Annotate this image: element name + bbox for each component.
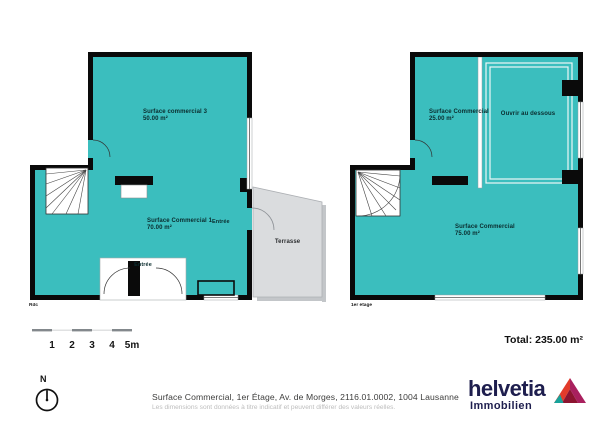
total-area: Total: 235.00 m² (504, 334, 583, 346)
void-label: Ouvrir au dessous (482, 111, 574, 118)
terrace-label: Terrasse (253, 239, 322, 246)
scale-tick: 2 (62, 340, 82, 351)
disclaimer-line: Les dimensions sont données à titre indi… (152, 404, 395, 411)
first-floor-plan (350, 52, 583, 300)
scale-tick: 4 (102, 340, 122, 351)
scale-tick: 3 (82, 340, 102, 351)
room-name: Surface commercial 3 (143, 109, 207, 116)
address-line: Surface Commercial, 1er Étage, Av. de Mo… (152, 392, 459, 402)
room-label-ground-top: Surface commercial 3 50.00 m² (143, 109, 207, 123)
closet-shape (121, 185, 147, 198)
scale-tick: 5m (122, 340, 142, 351)
north-label: N (40, 374, 47, 384)
stairs-first (356, 170, 400, 216)
helvetia-wordmark: helvetia (468, 376, 545, 402)
room-label-first-top: Surface Commercial 25.00 m² (429, 109, 489, 123)
stairs-ground (46, 168, 88, 214)
room-label-first-bottom: Surface Commercial 75.00 m² (455, 224, 515, 238)
room-name: Surface Commercial 1 (147, 218, 212, 225)
room-area: 50.00 m² (143, 116, 207, 123)
entrance-bottom-label: Entrée (100, 262, 186, 269)
room-area: 75.00 m² (455, 231, 515, 238)
room-name: Surface Commercial (429, 109, 489, 116)
helvetia-logo-icon (554, 378, 586, 403)
floorplan-page: Surface commercial 3 50.00 m² Surface Co… (0, 0, 600, 424)
floor-label-first: 1er étage (351, 303, 372, 308)
entrance-step (198, 281, 234, 295)
room-label-ground-bottom: Surface Commercial 1 70.00 m² (147, 218, 212, 232)
north-compass (37, 390, 58, 411)
room-area: 25.00 m² (429, 116, 489, 123)
helvetia-sublabel: Immobilien (470, 400, 532, 412)
floor-label-ground: Rdc (29, 303, 38, 308)
room-area: 70.00 m² (147, 225, 212, 232)
scale-bar (32, 329, 132, 331)
room-name: Surface Commercial (455, 224, 515, 231)
scale-tick: 1 (42, 340, 62, 351)
entrance-side-label: Entrée (212, 219, 230, 226)
floorplan-graphics (0, 0, 600, 424)
